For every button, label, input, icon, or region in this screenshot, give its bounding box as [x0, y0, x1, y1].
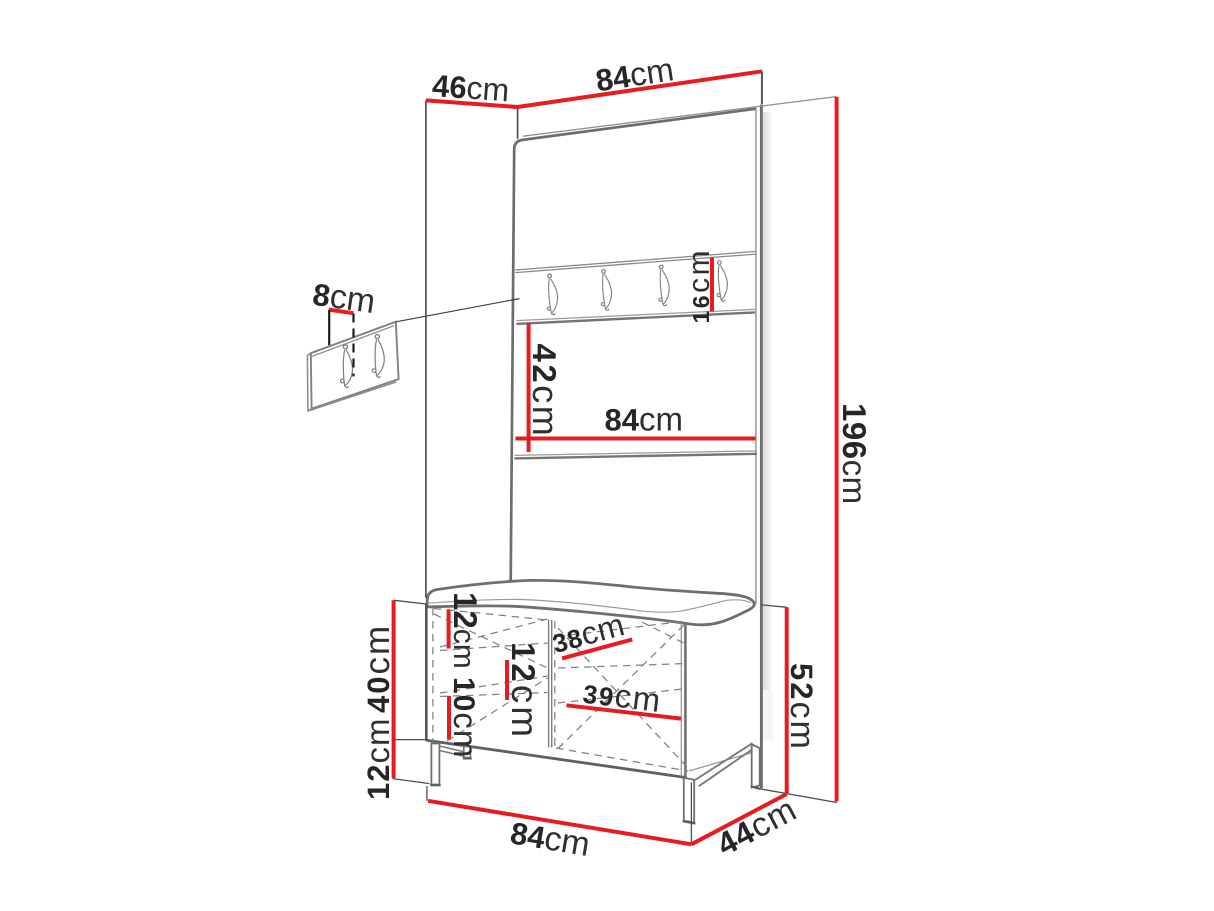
svg-text:196cm: 196cm [836, 403, 873, 505]
svg-text:40cm: 40cm [358, 624, 397, 713]
svg-text:12cm: 12cm [447, 592, 484, 669]
svg-text:12cm: 12cm [359, 718, 396, 800]
svg-text:42cm: 42cm [525, 344, 566, 439]
svg-text:10cm: 10cm [447, 677, 484, 758]
svg-text:52cm: 52cm [783, 663, 821, 751]
svg-text:84cm: 84cm [605, 401, 683, 438]
svg-text:12cm: 12cm [504, 642, 545, 740]
svg-text:46cm: 46cm [431, 67, 510, 108]
svg-text:16cm: 16cm [683, 248, 716, 324]
